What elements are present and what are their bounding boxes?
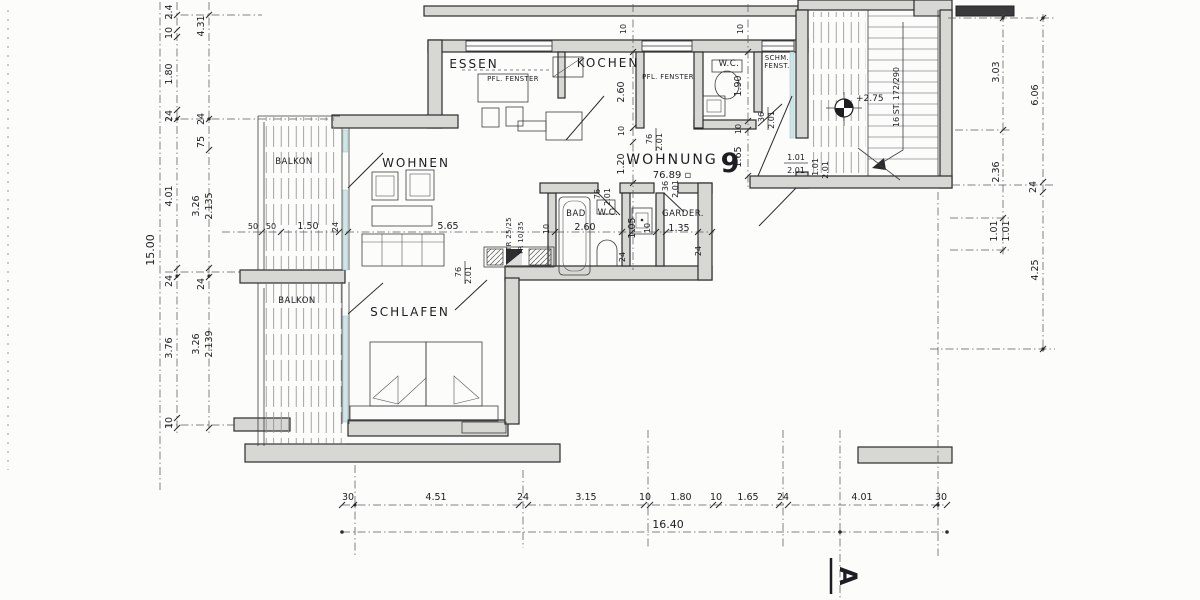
balkon-upper [258, 116, 340, 270]
stairs-note: 16 ST. 172/290 [892, 67, 901, 127]
dim: 2.139 [204, 330, 215, 357]
bottom-dimensions: 30 4.51 24 3.15 10 1.80 10 1.65 24 4.01 … [342, 492, 947, 531]
dim: 2.36 [991, 161, 1002, 182]
room-label-kochen: KOCHEN [577, 56, 640, 70]
dim: 4.01 [164, 185, 175, 206]
dim: 3.76 [164, 337, 175, 358]
dim: 24 [331, 222, 340, 232]
dim: 1.20 [616, 153, 627, 174]
door-dim: 2.01 [603, 188, 612, 206]
dim: 10 [542, 224, 551, 234]
fenster-note-kochen: PFL. FENSTER [642, 73, 694, 81]
room-label-wohnen: WOHNEN [382, 156, 450, 170]
dim: 10 [639, 492, 651, 503]
room-label-schlafen: SCHLAFEN [370, 305, 450, 319]
dim: 1.90 [733, 75, 744, 96]
dim: 24 [777, 492, 789, 503]
room-label-bad: BAD [566, 209, 586, 219]
apartment-name: WOHNUNG [626, 152, 717, 168]
door-dim: 2.01 [671, 180, 680, 198]
dim: 24 [618, 252, 627, 262]
dim: 3.26 [191, 333, 202, 354]
dim: 2.60 [616, 81, 627, 102]
dim: 50 [248, 222, 258, 231]
dim-left-total: 15.00 [144, 234, 157, 266]
apartment-title: WOHNUNG 9 76.89 ▫ [626, 148, 739, 181]
door-dim: 2.01 [821, 161, 830, 179]
dim: 1.35 [668, 223, 689, 234]
dim: 4.51 [425, 492, 446, 503]
dim: 24 [164, 110, 175, 122]
dim: 10 [710, 492, 722, 503]
dim: 3.15 [575, 492, 596, 503]
dim: 24 [694, 246, 703, 256]
dim-bottom-total: 16.40 [652, 518, 684, 531]
room-label-wc-top: W.C. [719, 59, 740, 69]
balkon-lower [258, 283, 345, 446]
dim: 6.06 [1030, 84, 1041, 105]
dim: 10 [617, 126, 626, 136]
dim: 24 [517, 492, 529, 503]
tr-note-1: TR 25/25 [505, 217, 513, 252]
window-glazing [343, 52, 794, 422]
door-dim: 36 [661, 181, 670, 191]
section-marker: A [831, 558, 862, 594]
room-label-balkon-upper: BALKON [275, 157, 313, 167]
dim: 2.60 [574, 222, 595, 233]
level-note: +2.75 [856, 94, 884, 104]
dim: 4.01 [851, 492, 872, 503]
section-marker-letter: A [834, 567, 862, 586]
dim: 50 [266, 222, 276, 231]
dim: 10 [734, 124, 743, 134]
room-label-garderobe: GARDER. [662, 209, 704, 219]
dim: 1.80 [670, 492, 691, 503]
dim: 30 [935, 492, 947, 503]
door-dim: 1.01 [787, 153, 805, 162]
tr-note-2: TR 10/35 [517, 221, 525, 256]
dim: 3.26 [191, 195, 202, 216]
wohnen-furniture [362, 170, 444, 266]
dim: 5.65 [437, 221, 458, 232]
dim: 24 [164, 275, 175, 287]
dim: 1.05 [627, 217, 638, 238]
dim: 1.65 [733, 146, 744, 167]
door-dim: 2.01 [787, 166, 805, 175]
dim: 1.50 [297, 221, 318, 232]
right-dimensions: 3.03 2.36 1.01 1.01 6.06 24 4.25 [989, 61, 1041, 280]
dim: 24 [196, 278, 207, 290]
dim: 1.65 [737, 492, 758, 503]
door-dim: 76 [593, 189, 602, 199]
room-label-wc-mid: W.C. [598, 208, 619, 218]
floor-plan-drawing: ESSEN KOCHEN WOHNEN SCHLAFEN BAD W.C. GA… [0, 0, 1200, 600]
dim: 30 [342, 492, 354, 503]
schm-fenster-note-1: SCHM. [765, 54, 789, 62]
dim: 3.03 [991, 61, 1002, 82]
room-label-essen: ESSEN [449, 57, 498, 71]
room-label-balkon-lower: BALKON [278, 296, 316, 306]
dim: 10 [164, 417, 175, 429]
dim: 4.31 [196, 15, 207, 36]
schm-fenster-note-2: FENST. [764, 62, 790, 70]
fenster-note-essen: PFL. FENSTER [487, 75, 539, 83]
door-dim: 76 [645, 134, 654, 144]
dim: 2.4 [164, 4, 175, 19]
dim: 10 [164, 27, 175, 39]
dim: 2.135 [204, 192, 215, 219]
door-dim: 76 [454, 267, 463, 277]
dim: 10 [643, 223, 652, 233]
bed [350, 342, 498, 421]
dim: 75 [196, 136, 207, 148]
dim: 10 [736, 24, 745, 34]
dim: 24 [1028, 181, 1039, 193]
dim: 1.01 [1001, 220, 1012, 241]
dim: 1.80 [164, 63, 175, 84]
dim: 24 [196, 113, 207, 125]
dim: 4.25 [1030, 259, 1041, 280]
door-dim: 36 [757, 112, 766, 122]
dim: 10 [619, 24, 628, 34]
dim: 1.01 [989, 220, 1000, 241]
floor-plan-scan: ESSEN KOCHEN WOHNEN SCHLAFEN BAD W.C. GA… [0, 0, 1200, 600]
left-dimensions: 15.00 2.4 10 1.80 24 4.01 24 3.76 10 4.3… [144, 4, 215, 429]
door-dim: 1.01 [811, 158, 820, 176]
apartment-area: 76.89 ▫ [653, 170, 692, 181]
